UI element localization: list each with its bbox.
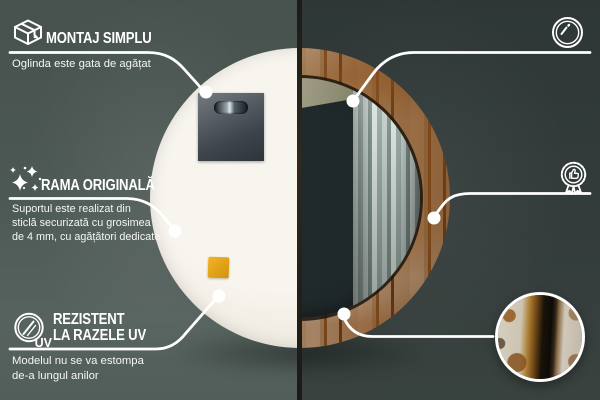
mirror-shine-icon [550,15,585,50]
callout-description: Oglinda este gata de agățat [12,57,151,72]
product-showcase: MONTAJ SIMPLU Oglinda este gata de agăța… [0,0,600,400]
callout-title: MONTAJ SIMPLU [46,31,175,47]
uv-text: UV [35,336,52,350]
callout-title: RAMA ORIGINALĂ [41,178,180,194]
label-sticker [208,257,230,279]
uv-protection-icon: UV [11,311,49,349]
title-text: MONTAJ SIMPLU [46,31,152,47]
package-box-icon [10,15,46,51]
title-text: RAMA ORIGINALĂ [41,178,155,194]
title-line: REZISTENT [53,312,124,328]
callout-title: REZISTENT LA RAZELE UV [53,312,166,345]
callout-description: Modelul nu se va estompa de-a lungul ani… [12,354,144,383]
sparkles-icon [7,162,42,197]
desc-line: Suportul este realizat din [12,202,160,216]
frame-texture-closeup [495,292,585,382]
desc-line: de-a lungul anilor [12,369,144,384]
hanger-slot [214,101,248,114]
split-divider [297,0,302,400]
title-line: LA RAZELE UV [53,328,146,344]
reflected-curtain [353,83,420,318]
desc-line: Oglinda este gata de agățat [12,57,151,72]
callout-description: Suportul este realizat din sticlă securi… [12,202,160,244]
award-badge-icon [555,161,592,198]
distressed-wood-texture [495,292,585,382]
desc-line: sticlă securizată cu grosimea [12,216,160,230]
desc-line: de 4 mm, cu agățători dedicate [12,230,160,244]
desc-line: Modelul nu se va estompa [12,354,144,369]
mounting-plate [198,93,264,161]
